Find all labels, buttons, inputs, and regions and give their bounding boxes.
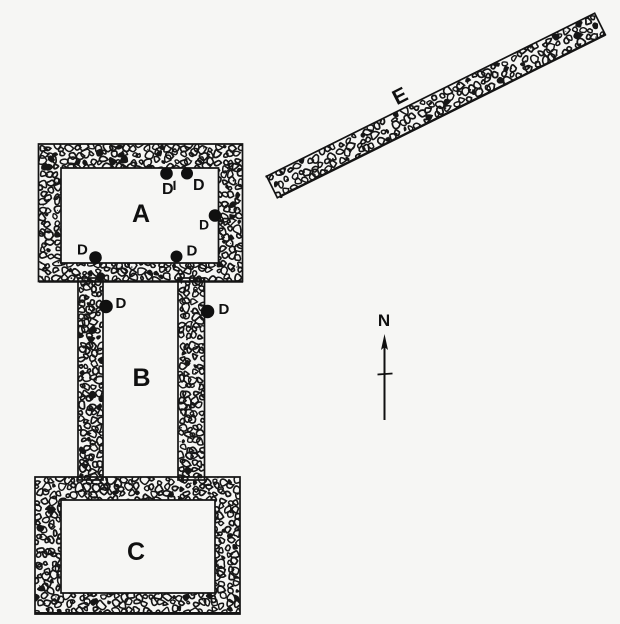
svg-text:D: D [199,217,209,233]
svg-text:D: D [187,243,198,260]
svg-text:C: C [127,538,145,566]
svg-text:N: N [378,311,390,330]
svg-text:B: B [132,364,150,392]
svg-text:D: D [77,242,88,259]
svg-text:D: D [116,295,127,312]
svg-text:D: D [162,181,174,198]
svg-text:D: D [193,177,205,194]
svg-text:D: D [219,301,230,318]
svg-text:A: A [132,200,150,228]
